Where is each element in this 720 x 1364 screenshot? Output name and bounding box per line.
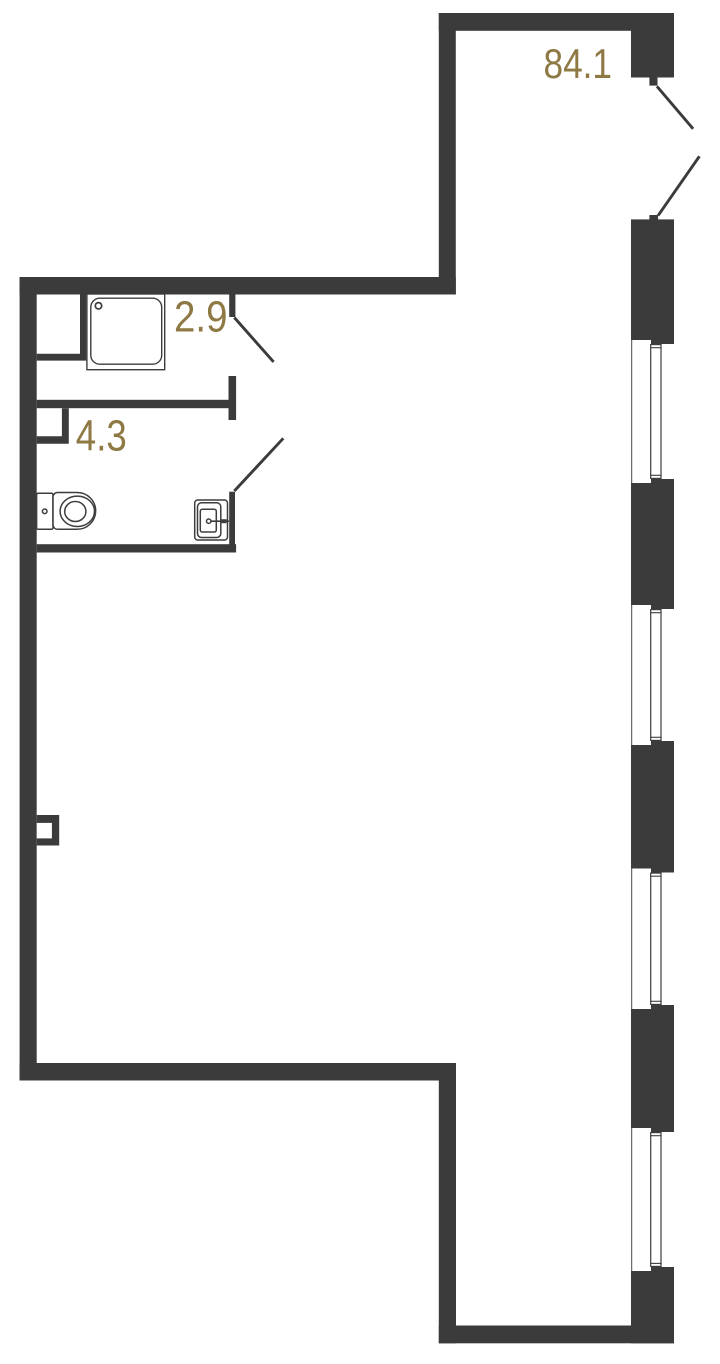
svg-text:84.1: 84.1 [544,40,613,87]
svg-text:2.9: 2.9 [174,293,228,342]
svg-text:4.3: 4.3 [76,412,127,461]
